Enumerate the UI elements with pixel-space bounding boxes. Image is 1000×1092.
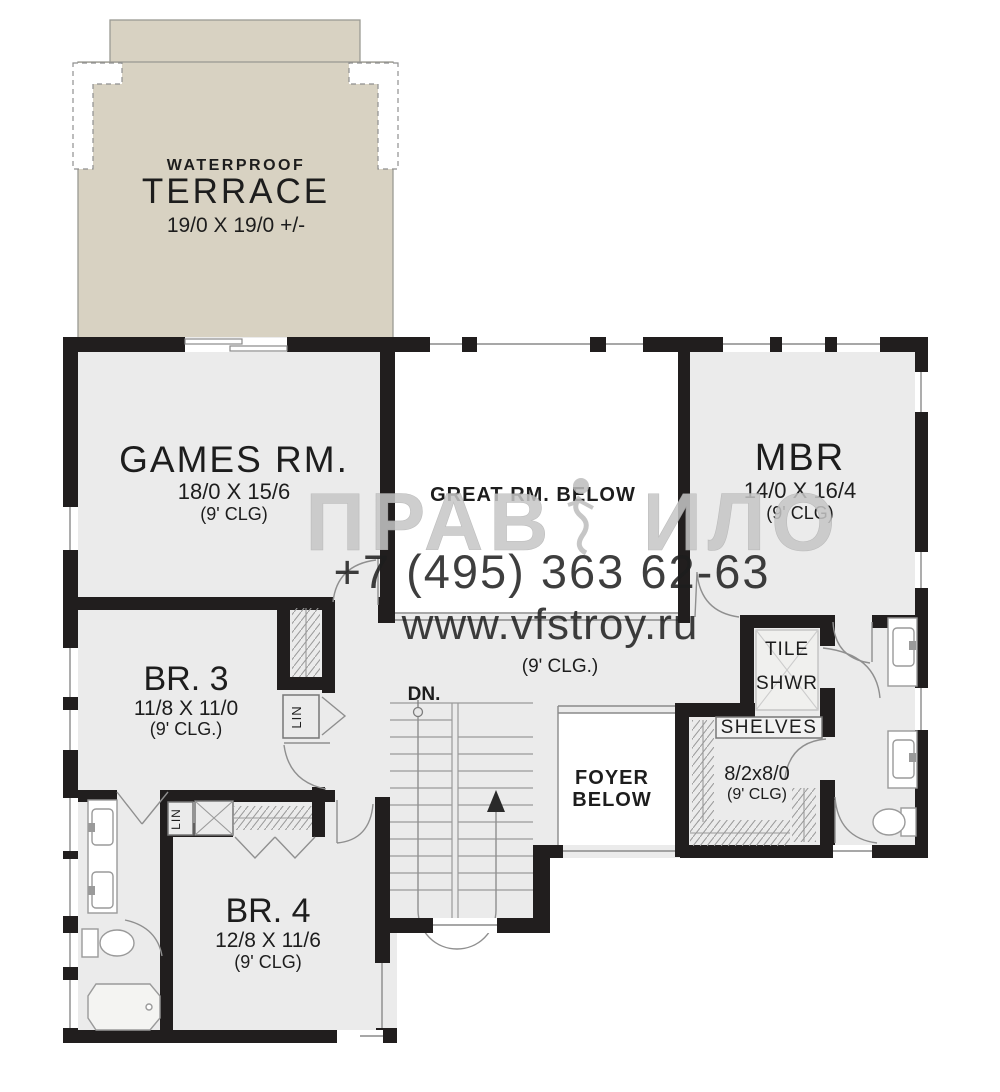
toilet-master xyxy=(873,808,916,836)
vanity-master-1 xyxy=(888,618,917,686)
toilet-left xyxy=(82,929,134,957)
terrace-dims: 19/0 X 19/0 +/- xyxy=(167,214,305,237)
stairs-down-label: DN. xyxy=(408,684,441,705)
br3-ceiling: (9' CLG.) xyxy=(150,719,222,739)
stair-start-marker xyxy=(414,708,423,717)
mbr-name: MBR xyxy=(755,437,845,479)
foyer-label-1: FOYER xyxy=(575,767,649,789)
terrace-slider-door xyxy=(185,338,287,352)
br3-dims: 11/8 X 11/0 xyxy=(134,697,238,720)
games-room-name: GAMES RM. xyxy=(119,439,349,480)
bathtub xyxy=(88,984,160,1030)
games-room-dims: 18/0 X 15/6 xyxy=(178,479,291,504)
br4-ceiling: (9' CLG) xyxy=(234,952,301,972)
lin-label-upper: LIN xyxy=(289,705,304,728)
shower-label-2: SHWR xyxy=(756,673,818,694)
shelves-label: SHELVES xyxy=(721,717,818,738)
br3-name: BR. 3 xyxy=(143,660,228,698)
wic-ceiling: (9' CLG) xyxy=(727,786,787,803)
watermark-phone: +7 (495) 363 62-63 xyxy=(333,545,770,598)
hall-ceiling: (9' CLG.) xyxy=(522,656,598,677)
shower-label-1: TILE xyxy=(765,639,809,660)
floor-plan-sheet: WATERPROOF TERRACE 19/0 X 19/0 +/- GAMES… xyxy=(0,0,1000,1092)
wic-dims: 8/2x8/0 xyxy=(724,763,790,785)
games-room-ceiling: (9' CLG) xyxy=(200,504,267,524)
watermark-site: www.vfstroy.ru xyxy=(401,600,699,649)
br4-name: BR. 4 xyxy=(225,892,310,930)
br4-dims: 12/8 X 11/6 xyxy=(215,929,321,952)
lin-label-lower: LIN xyxy=(169,808,183,830)
floor-plan-drawing: WATERPROOF TERRACE 19/0 X 19/0 +/- GAMES… xyxy=(0,0,1000,1092)
vanity-left xyxy=(88,800,117,913)
foyer-label-2: BELOW xyxy=(572,789,651,811)
vanity-master-2 xyxy=(888,731,917,788)
terrace-label-2: TERRACE xyxy=(142,172,330,211)
